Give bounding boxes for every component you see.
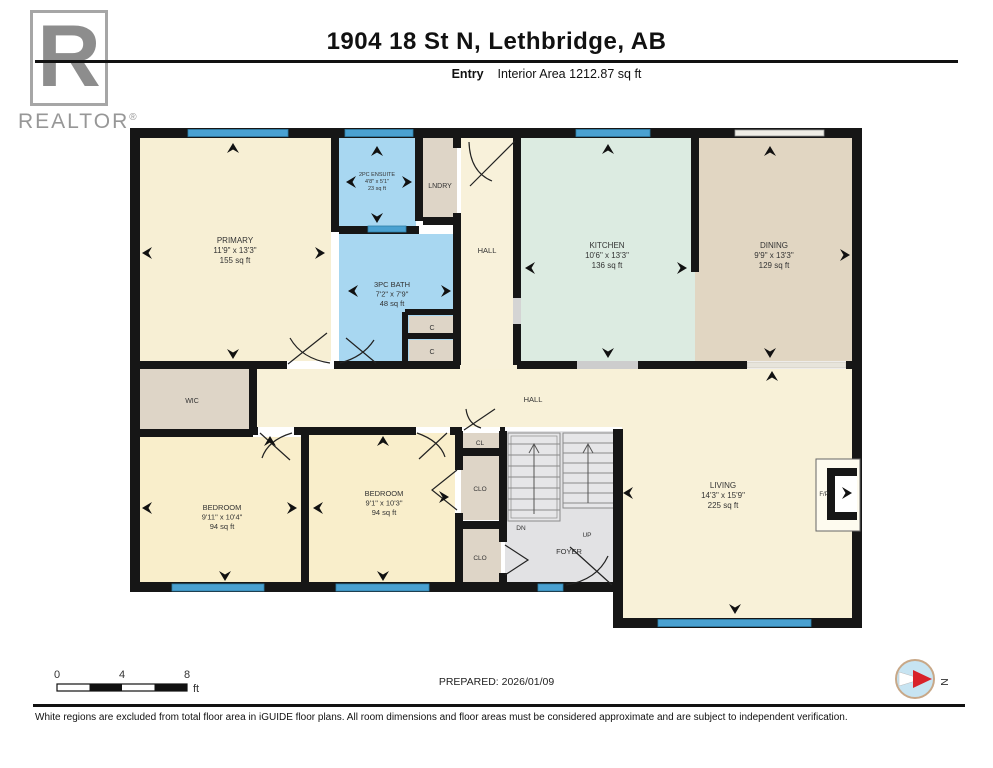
disclaimer-text: White regions are excluded from total fl…: [35, 712, 965, 723]
header-divider: [35, 60, 958, 63]
realtor-logo-letter: R: [37, 12, 101, 100]
floor-plan-page: R REALTOR® 1904 18 St N, Lethbridge, AB …: [0, 0, 993, 768]
footer-divider: [33, 704, 965, 707]
footer-graphics: 0 4 8 ft N: [0, 0, 993, 768]
realtor-logo: R REALTOR®: [18, 10, 139, 134]
realtor-logo-box: R: [30, 10, 108, 106]
registered-mark: ®: [129, 112, 138, 123]
realtor-logo-word: REALTOR®: [18, 110, 139, 134]
prepared-date: PREPARED: 2026/01/09: [0, 676, 993, 688]
